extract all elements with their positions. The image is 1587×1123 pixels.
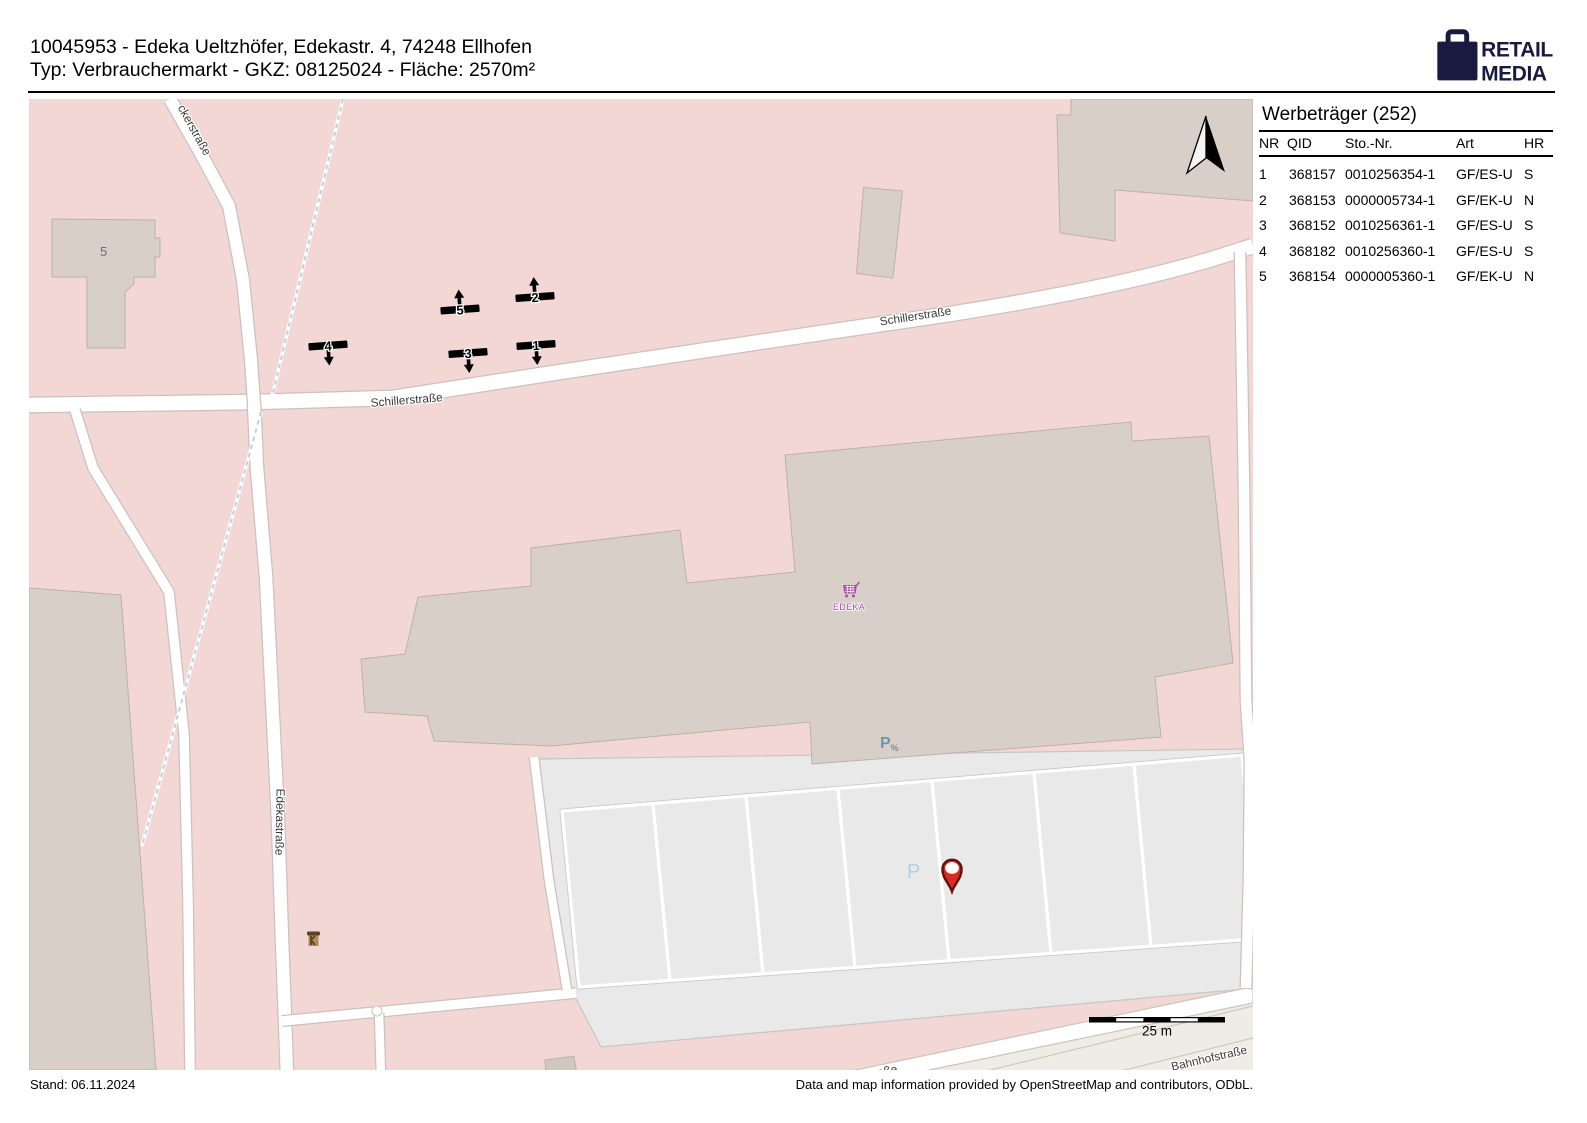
svg-text:1: 1 [532,338,540,353]
svg-text:RETAIL: RETAIL [1481,38,1553,61]
svg-text:25 m: 25 m [1142,1024,1172,1039]
svg-text:EDEKA: EDEKA [833,602,865,612]
svg-text:MEDIA: MEDIA [1481,62,1547,85]
svg-text:P: P [907,861,920,883]
svg-text:2: 2 [531,290,539,305]
svg-text:5: 5 [100,244,107,259]
svg-text:5: 5 [456,302,464,317]
svg-text:Edekastraße: Edekastraße [272,789,287,857]
svg-text:3: 3 [464,346,472,361]
